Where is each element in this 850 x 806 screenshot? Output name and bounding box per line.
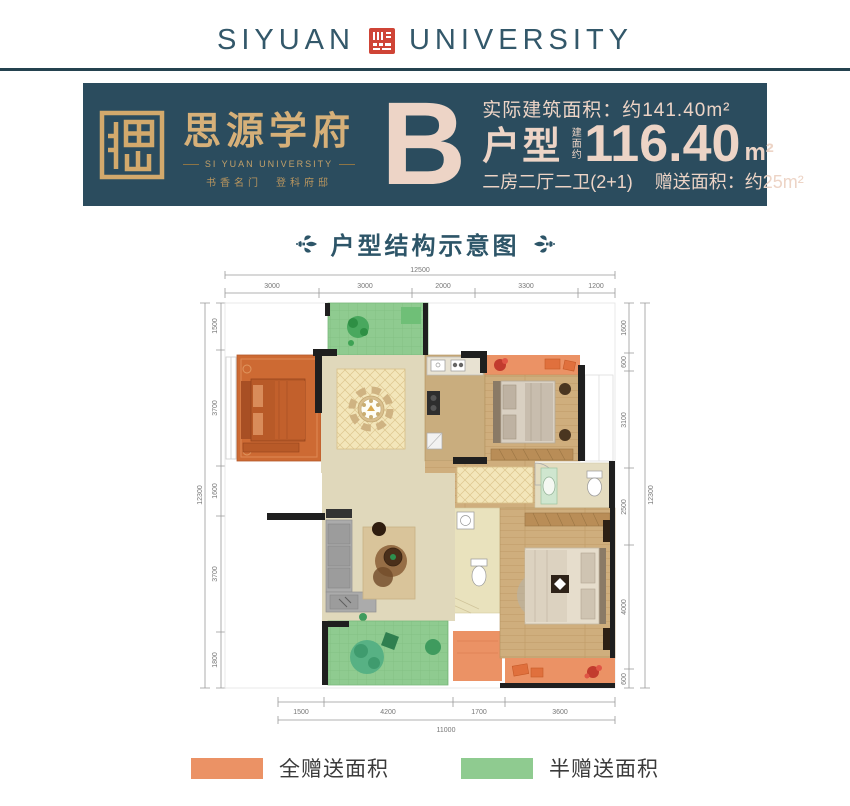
bench <box>243 443 299 452</box>
gift-area: 赠送面积：约25m² <box>655 168 804 194</box>
svg-text:2000: 2000 <box>435 283 451 290</box>
svg-text:4000: 4000 <box>621 599 628 615</box>
header-divider <box>0 68 850 71</box>
side-table <box>372 522 386 536</box>
floor-plan-container: 12500 3000 3000 2000 3300 1200 12300 150… <box>195 265 655 745</box>
half-gift-swatch <box>461 758 533 779</box>
area-prefix: 建面约 <box>569 127 579 163</box>
plan-body <box>225 303 615 688</box>
bed <box>525 548 606 624</box>
svg-text:1600: 1600 <box>621 320 628 336</box>
svg-text:3100: 3100 <box>621 412 628 428</box>
svg-text:1200: 1200 <box>588 283 604 290</box>
gift-strip-bottom <box>505 658 615 685</box>
dining-room <box>321 355 425 473</box>
project-logo-icon <box>97 106 167 184</box>
legend-half-gift: 半赠送面积 <box>461 753 659 783</box>
project-name: 思源学府 <box>183 100 355 155</box>
small-plant-icon <box>359 613 367 621</box>
toilet-icon <box>471 559 487 586</box>
seal-icon <box>369 28 395 54</box>
svg-text:3700: 3700 <box>212 566 219 582</box>
unit-layout-row: 二房二厅二卫(2+1) 赠送面积：约25m² <box>482 168 804 194</box>
unit-type-letter: B <box>381 94 466 194</box>
svg-text:1500: 1500 <box>212 318 219 334</box>
floor-plan-svg: 12500 3000 3000 2000 3300 1200 12300 150… <box>195 265 655 740</box>
kitchen <box>425 355 485 461</box>
unit-area-row: 户型 建面约 116.40 m² <box>482 124 804 165</box>
bathroom-center <box>453 508 505 613</box>
unit-type-label: 户型 <box>482 129 562 165</box>
section-title: 户型结构示意图 <box>331 226 520 261</box>
stove <box>451 360 465 371</box>
section-title-row: 户型结构示意图 <box>0 226 850 261</box>
rule-left <box>183 164 199 165</box>
living-room <box>322 473 455 621</box>
svg-text:2500: 2500 <box>621 499 628 515</box>
brand-left: SIYUAN <box>217 24 355 57</box>
area-value: 116.40 <box>584 124 740 165</box>
full-gift-swatch <box>191 758 263 779</box>
svg-text:3000: 3000 <box>264 283 280 290</box>
rule-right <box>339 164 355 165</box>
svg-text:600: 600 <box>621 356 628 368</box>
svg-text:12300: 12300 <box>197 485 204 505</box>
svg-text:1500: 1500 <box>293 709 309 716</box>
dimension-right: 1600 600 3100 2500 4000 600 12300 <box>621 303 655 688</box>
legend: 全赠送面积 半赠送面积 <box>0 753 850 783</box>
bedroom-2 <box>237 355 321 461</box>
toilet-icon <box>587 471 602 496</box>
nightstand <box>559 429 571 441</box>
svg-text:1600: 1600 <box>212 483 219 499</box>
half-gift-label: 半赠送面积 <box>549 753 659 783</box>
full-gift-label: 全赠送面积 <box>279 753 389 783</box>
svg-text:3700: 3700 <box>212 400 219 416</box>
svg-text:600: 600 <box>621 673 628 685</box>
bed <box>241 379 305 441</box>
wardrobe <box>491 449 573 460</box>
dimension-left: 12300 1500 3700 1600 3700 1800 <box>197 303 226 688</box>
svg-text:1700: 1700 <box>471 709 487 716</box>
unit-type-info: 实际建筑面积：约141.40m² 户型 建面约 116.40 m² 二房二厅二卫… <box>482 95 804 194</box>
project-banner: 思源学府 SI YUAN UNIVERSITY 书香名门 登科府邸 B 实际建筑… <box>83 83 767 206</box>
svg-text:3300: 3300 <box>518 283 534 290</box>
fleur-de-lis-icon <box>533 233 555 255</box>
svg-text:12300: 12300 <box>648 485 655 505</box>
project-logo-text: 思源学府 SI YUAN UNIVERSITY 书香名门 登科府邸 <box>183 100 355 189</box>
fleur-de-lis-icon <box>296 233 318 255</box>
balcony-bottom <box>328 621 448 685</box>
bed <box>493 381 555 443</box>
project-slogan: 书香名门 登科府邸 <box>206 174 332 189</box>
sink <box>543 477 555 495</box>
wardrobe <box>525 513 610 526</box>
balcony-top <box>328 303 428 355</box>
svg-text:3000: 3000 <box>357 283 373 290</box>
bathroom-right <box>535 463 613 508</box>
bedroom-1 <box>485 355 580 461</box>
room-layout: 二房二厅二卫(2+1) <box>482 168 633 194</box>
svg-text:12500: 12500 <box>410 267 430 274</box>
plant-icon <box>350 640 384 674</box>
sink <box>431 360 445 371</box>
brand-header: SIYUAN UNIVERSITY <box>0 0 850 57</box>
hall-rug <box>457 467 533 503</box>
svg-text:1800: 1800 <box>212 652 219 668</box>
washing-machine <box>457 512 474 529</box>
svg-text:4200: 4200 <box>380 709 396 716</box>
master-bedroom <box>500 508 615 658</box>
dimension-top: 12500 3000 3000 2000 3300 1200 <box>225 267 615 298</box>
tv-console <box>326 509 352 518</box>
legend-full-gift: 全赠送面积 <box>191 753 389 783</box>
cooktop <box>427 391 440 415</box>
project-name-en: SI YUAN UNIVERSITY <box>183 159 355 169</box>
area-unit: m² <box>744 141 773 165</box>
gift-area-square <box>453 631 502 681</box>
svg-text:11000: 11000 <box>437 727 456 734</box>
dimension-bottom: 1500 4200 1700 3600 11000 <box>278 697 615 734</box>
svg-text:3600: 3600 <box>552 709 568 716</box>
nightstand <box>559 383 571 395</box>
brand-right: UNIVERSITY <box>409 24 633 57</box>
